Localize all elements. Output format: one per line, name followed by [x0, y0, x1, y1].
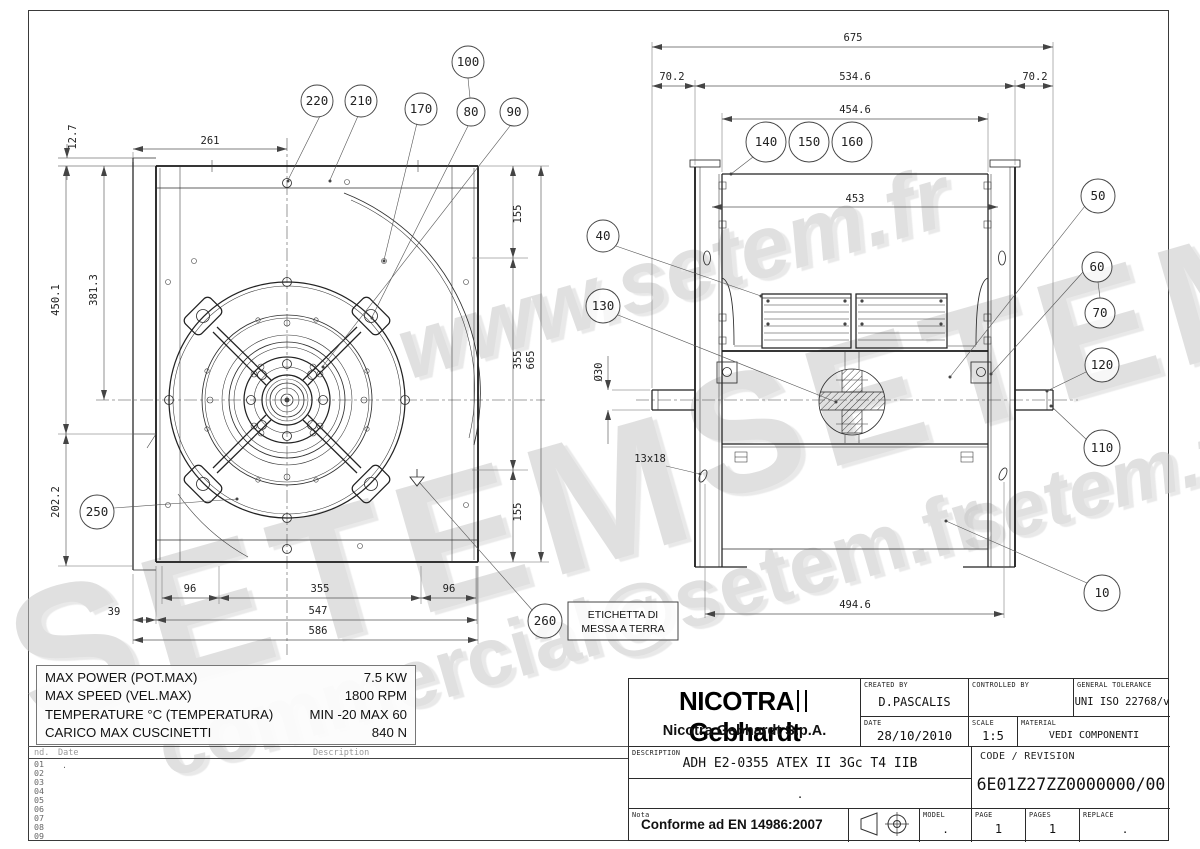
plate-fasteners	[697, 182, 1008, 483]
date-cell: DATE 28/10/2010	[861, 717, 969, 747]
balloon-210-label: 210	[350, 93, 373, 108]
spec-row: MAX POWER (POT.MAX)7.5 KW	[45, 669, 407, 686]
description-row2-value: .	[629, 788, 971, 801]
description-cell: DESCRIPTION ADH E2-0355 ATEX II 3Gc T4 I…	[629, 747, 972, 779]
dim-96-right: 96	[443, 583, 456, 595]
balloon-40: 40	[587, 220, 619, 252]
dim-675: 675	[844, 32, 863, 44]
dim-453: 453	[846, 193, 865, 205]
material-label: MATERIAL	[1021, 719, 1056, 727]
revision-header: nd. Date Description	[28, 747, 628, 759]
page-value: 1	[972, 822, 1025, 836]
front-view-balloons: 220 210 170 80 90 100 250 260 ETICHETTA …	[80, 46, 678, 640]
nota-cell: Nota Conforme ad EN 14986:2007	[629, 809, 849, 842]
dim-450-1: 450.1	[50, 284, 62, 316]
spec-value: 840 N	[372, 724, 407, 741]
spec-label: TEMPERATURE °C (TEMPERATURA)	[45, 706, 273, 723]
balloon-80: 80	[457, 98, 485, 126]
scale-cell: SCALE 1:5	[969, 717, 1018, 747]
tolerance-cell: GENERAL TOLERANCE UNI ISO 22768/v	[1074, 679, 1170, 717]
dim-355-bottom: 355	[311, 583, 330, 595]
side-view	[636, 160, 1078, 567]
balloon-140-label: 140	[755, 134, 778, 149]
balloon-220: 220	[301, 85, 333, 117]
model-label: MODEL	[923, 811, 945, 819]
balloon-150: 150	[789, 122, 829, 162]
date-value: 28/10/2010	[861, 728, 968, 743]
dim-diameter-30: Ø30	[593, 363, 605, 382]
company-name: Nicotra Gebhardt S.p.A.	[629, 723, 860, 739]
balloon-250: 250	[80, 495, 114, 529]
dim-12-7: 12.7	[67, 124, 79, 149]
balloon-10-label: 10	[1094, 585, 1109, 600]
replace-label: REPLACE	[1083, 811, 1114, 819]
balloon-170: 170	[405, 93, 437, 125]
spec-value: MIN -20 MAX 60	[310, 706, 407, 723]
dim-39: 39	[108, 606, 121, 618]
balloon-120: 120	[1085, 348, 1119, 382]
balloon-100: 100	[452, 46, 484, 78]
scale-label: SCALE	[972, 719, 994, 727]
balloon-90-label: 90	[506, 104, 521, 119]
dim-547: 547	[309, 605, 328, 617]
ground-label-line1: ETICHETTA DI	[588, 609, 658, 621]
balloon-80-label: 80	[463, 104, 478, 119]
bearing-detail	[819, 352, 885, 443]
dim-261: 261	[201, 135, 220, 147]
dim-665: 665	[525, 351, 537, 370]
logo-divider-icon	[797, 690, 807, 712]
spec-label: MAX SPEED (VEL.MAX)	[45, 687, 192, 704]
balloon-70: 70	[1085, 298, 1115, 328]
revision-row: 09	[34, 832, 44, 841]
balloon-60: 60	[1082, 252, 1112, 282]
dim-454-6: 454.6	[839, 104, 871, 116]
logo-cell: NICOTRAGebhardt Nicotra Gebhardt S.p.A.	[629, 679, 861, 747]
revision-col-desc: Description	[313, 748, 369, 758]
balloon-70-label: 70	[1092, 305, 1107, 320]
spec-value: 1800 RPM	[345, 687, 407, 704]
revision-table: nd. Date Description 01 . 02 03 04 05 06…	[28, 746, 628, 841]
pages-label: PAGES	[1029, 811, 1051, 819]
revision-col-date: Date	[58, 748, 78, 758]
revision-col-index: nd.	[34, 748, 49, 758]
description-row2-cell: .	[629, 779, 972, 809]
tolerance-label: GENERAL TOLERANCE	[1077, 681, 1152, 689]
dim-96-left: 96	[184, 583, 197, 595]
created-by-cell: CREATED BY D.PASCALIS	[861, 679, 969, 717]
balloon-250-label: 250	[86, 504, 109, 519]
created-by-value: D.PASCALIS	[861, 695, 968, 709]
pages-value: 1	[1026, 822, 1079, 836]
ground-symbol-icon	[410, 469, 424, 486]
dim-586: 586	[309, 625, 328, 637]
description-value: ADH E2-0355 ATEX II 3Gc T4 IIB	[629, 756, 971, 771]
dim-155-top: 155	[512, 205, 524, 224]
dim-13x18: 13x18	[634, 453, 666, 465]
replace-cell: REPLACE .	[1080, 809, 1170, 842]
projection-symbol-cell	[849, 809, 920, 842]
balloon-140: 140	[746, 122, 786, 162]
replace-value: .	[1080, 823, 1170, 836]
impeller-blades	[762, 294, 947, 348]
spec-label: MAX POWER (POT.MAX)	[45, 669, 197, 686]
controlled-by-label: CONTROLLED BY	[972, 681, 1029, 689]
code-revision-value: 6E01Z27ZZ0000000/00	[972, 775, 1170, 794]
page-label: PAGE	[975, 811, 993, 819]
revision-row-entry: .	[62, 760, 67, 770]
code-revision-label: CODE / REVISION	[980, 751, 1075, 762]
balloon-260-label: 260	[534, 613, 557, 628]
pages-cell: PAGES 1	[1026, 809, 1080, 842]
dim-494-6: 494.6	[839, 599, 871, 611]
balloon-220-label: 220	[306, 93, 329, 108]
front-view	[58, 138, 545, 655]
balloon-130-label: 130	[592, 298, 615, 313]
dim-70-2-left: 70.2	[659, 71, 684, 83]
nota-value: Conforme ad EN 14986:2007	[641, 817, 823, 832]
balloon-50-label: 50	[1090, 188, 1105, 203]
balloon-110-label: 110	[1091, 440, 1114, 455]
scale-value: 1:5	[969, 729, 1017, 743]
balloon-60-label: 60	[1089, 259, 1104, 274]
spec-value: 7.5 KW	[364, 669, 407, 686]
first-angle-projection-icon	[849, 809, 918, 840]
dim-534-6: 534.6	[839, 71, 871, 83]
balloon-120-label: 120	[1091, 357, 1114, 372]
created-by-label: CREATED BY	[864, 681, 908, 689]
balloon-160: 160	[832, 122, 872, 162]
code-revision-cell: CODE / REVISION 6E01Z27ZZ0000000/00	[972, 747, 1170, 809]
title-block: NICOTRAGebhardt Nicotra Gebhardt S.p.A. …	[628, 678, 1169, 841]
spec-label: CARICO MAX CUSCINETTI	[45, 724, 211, 741]
brand-left: NICOTRA	[679, 686, 794, 716]
drawing-sheet: www.setem.fr SETEM SETEM commercial@sete…	[0, 0, 1200, 849]
controlled-by-cell: CONTROLLED BY	[969, 679, 1074, 717]
balloon-170-label: 170	[410, 101, 433, 116]
spec-row: MAX SPEED (VEL.MAX)1800 RPM	[45, 687, 407, 704]
dim-381-3: 381.3	[88, 274, 100, 306]
dim-355-right: 355	[512, 351, 524, 370]
spec-row: TEMPERATURE °C (TEMPERATURA)MIN -20 MAX …	[45, 706, 407, 723]
spec-row: CARICO MAX CUSCINETTI840 N	[45, 724, 407, 741]
balloon-130: 130	[586, 289, 620, 323]
balloon-40-label: 40	[595, 228, 610, 243]
balloon-150-label: 150	[798, 134, 821, 149]
ground-label-box: ETICHETTA DI MESSA A TERRA	[568, 602, 678, 640]
tolerance-value: UNI ISO 22768/v	[1074, 696, 1170, 708]
dim-155-bottom: 155	[512, 503, 524, 522]
balloon-260: 260	[528, 604, 562, 638]
balloon-90: 90	[500, 98, 528, 126]
spec-table: MAX POWER (POT.MAX)7.5 KW MAX SPEED (VEL…	[36, 665, 416, 745]
balloon-110: 110	[1084, 430, 1120, 466]
balloon-210: 210	[345, 85, 377, 117]
side-view-dimensions: 675 70.2 534.6 70.2 454.6 453 Ø30 13x18	[593, 32, 1053, 618]
model-value: .	[920, 823, 971, 836]
dim-70-2-right: 70.2	[1022, 71, 1047, 83]
balloon-10: 10	[1084, 575, 1120, 611]
balloon-160-label: 160	[841, 134, 864, 149]
balloon-50: 50	[1081, 179, 1115, 213]
model-cell: MODEL .	[920, 809, 972, 842]
material-cell: MATERIAL VEDI COMPONENTI	[1018, 717, 1170, 747]
page-cell: PAGE 1	[972, 809, 1026, 842]
balloon-100-label: 100	[457, 54, 480, 69]
ground-label-line2: MESSA A TERRA	[581, 623, 664, 635]
date-label: DATE	[864, 719, 882, 727]
material-value: VEDI COMPONENTI	[1018, 730, 1170, 741]
dim-202-2: 202.2	[50, 486, 62, 518]
